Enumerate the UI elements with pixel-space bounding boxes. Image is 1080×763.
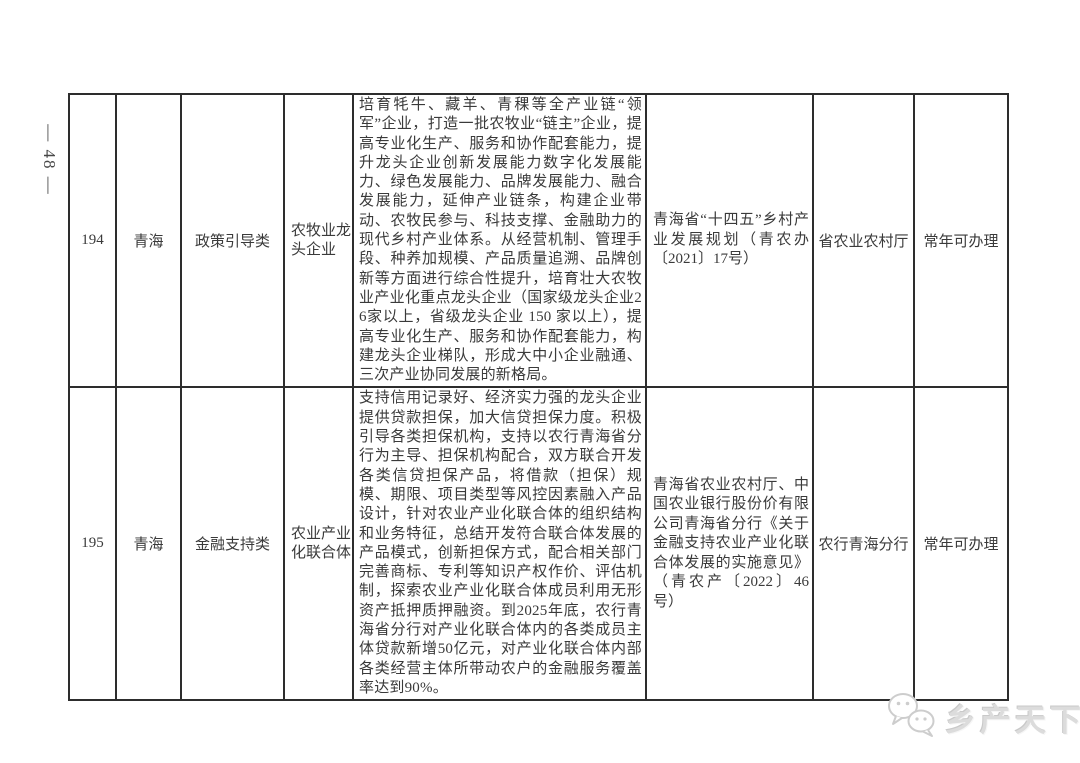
policy-table-container: 194 青海 政策引导类 农牧业龙头企业 培育牦牛、藏羊、青稞等全产业链“领军”… xyxy=(68,93,1009,701)
availability-cell: 常年可办理 xyxy=(914,94,1008,387)
category-cell: 金融支持类 xyxy=(181,387,284,700)
description-cell: 支持信用记录好、经济实力强的龙头企业提供贷款担保，加大信贷担保力度。积极引导各类… xyxy=(353,387,646,700)
policy-basis-cell: 青海省“十四五”乡村产业发展规划（青农办〔2021〕17号） xyxy=(646,94,813,387)
page-number: — 48 — xyxy=(39,124,59,196)
wechat-bubbles-icon xyxy=(886,690,940,745)
department-cell: 农行青海分行 xyxy=(813,387,914,700)
availability-cell: 常年可办理 xyxy=(914,387,1008,700)
policy-table: 194 青海 政策引导类 农牧业龙头企业 培育牦牛、藏羊、青稞等全产业链“领军”… xyxy=(68,93,1009,701)
description-cell: 培育牦牛、藏羊、青稞等全产业链“领军”企业，打造一批农牧业“链主”企业，提高专业… xyxy=(353,94,646,387)
subject-cell: 农牧业龙头企业 xyxy=(284,94,353,387)
watermark-text: 乡产天下 xyxy=(945,695,1080,740)
table-row-194: 194 青海 政策引导类 农牧业龙头企业 培育牦牛、藏羊、青稞等全产业链“领军”… xyxy=(69,94,1008,387)
department-cell: 省农业农村厅 xyxy=(813,94,914,387)
category-cell: 政策引导类 xyxy=(181,94,284,387)
province-cell: 青海 xyxy=(116,94,181,387)
subject-cell: 农业产业化联合体 xyxy=(284,387,353,700)
row-index-cell: 195 xyxy=(69,387,116,700)
watermark: 乡产天下 xyxy=(886,690,1080,745)
row-index-cell: 194 xyxy=(69,94,116,387)
policy-basis-cell: 青海省农业农村厅、中国农业银行股份价有限公司青海省分行《关于金融支持农业产业化联… xyxy=(646,387,813,700)
table-row-195: 195 青海 金融支持类 农业产业化联合体 支持信用记录好、经济实力强的龙头企业… xyxy=(69,387,1008,700)
province-cell: 青海 xyxy=(116,387,181,700)
